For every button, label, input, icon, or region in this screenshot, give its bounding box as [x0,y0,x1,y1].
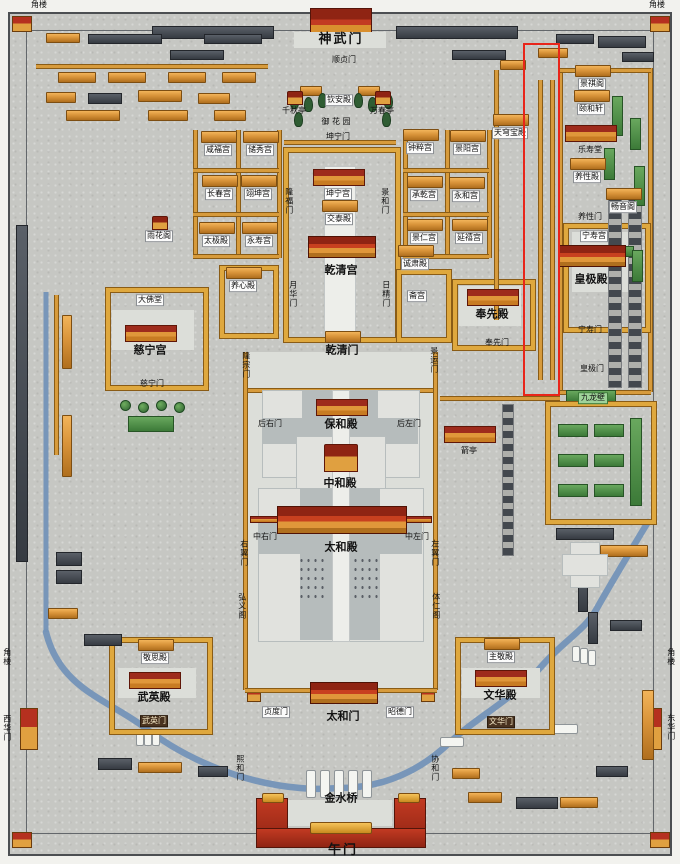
structure [562,554,608,576]
structure [384,94,393,109]
structure [550,724,578,734]
structure [193,254,279,259]
structure [608,198,622,388]
structure [306,770,316,798]
structure [588,650,596,666]
structure [193,212,279,217]
structure [452,768,480,779]
structure [594,484,624,497]
structure [397,270,451,342]
structure [298,556,326,602]
structure [634,166,645,206]
structure [198,93,230,104]
structure [118,668,196,698]
structure [606,246,634,257]
structure [138,90,182,102]
structure [622,52,654,62]
structure [560,797,598,808]
structure [403,254,489,259]
structure [204,34,262,44]
structure [214,110,246,121]
structure [58,72,96,83]
structure [138,762,182,773]
structure [294,32,386,48]
structure [148,110,188,121]
structure [588,612,598,644]
structure [596,766,628,777]
structure [348,770,358,798]
structure [354,93,363,108]
forbidden-city-map: 角楼角楼角楼角楼西华门东华门神武门顺贞门钦安殿千秋亭万春亭御 花 园坤宁门天穹宝… [0,0,680,864]
structure [403,130,408,258]
structure [403,168,489,173]
structure [108,72,146,83]
structure [120,400,131,411]
structure [262,793,284,803]
structure [572,646,580,662]
nine-dragon-screen [566,390,616,402]
structure [48,608,78,619]
structure [502,404,514,556]
structure [294,112,303,127]
structure [459,286,521,326]
structure [630,118,641,150]
structure [290,94,299,109]
structure [632,250,643,282]
structure [250,516,432,523]
structure [594,454,624,467]
structure [610,620,642,631]
structure [324,166,356,332]
annotation-rectangle [523,43,560,396]
structure [452,50,506,60]
structure [580,648,588,664]
structure [198,766,228,777]
structure [630,418,642,506]
structure [128,416,174,432]
structure [112,310,194,350]
structure [66,110,120,121]
structure [362,770,372,798]
structure [433,352,438,690]
structure [36,64,268,69]
structure [174,402,185,413]
structure [56,552,82,566]
structure [445,130,450,258]
structure [310,822,372,834]
structure [304,97,313,112]
structure [318,93,327,108]
structure [468,792,502,803]
structure [46,92,76,103]
structure [277,130,282,258]
map-buildings [0,0,680,864]
structure [168,72,206,83]
structure [88,93,122,104]
structure [193,168,279,173]
structure [604,148,615,180]
structure [334,770,344,798]
structure [396,26,518,39]
structure [138,402,149,413]
structure [462,668,540,698]
structure [558,68,651,73]
structure [558,484,588,497]
structure [612,96,623,136]
structure [558,454,588,467]
structure [440,737,464,747]
structure [236,130,241,258]
structure [382,112,391,127]
structure [243,352,248,690]
structure [98,758,132,770]
structure [193,130,198,258]
structure [170,50,224,60]
structure [88,34,162,44]
structure [594,424,624,437]
structure [556,34,594,44]
structure [62,315,72,369]
structure [368,97,377,112]
structure [222,72,256,83]
structure [572,232,634,292]
structure [46,33,80,43]
structure [352,556,380,602]
structure [56,570,82,584]
structure [403,212,489,217]
structure [16,225,28,562]
structure [628,198,642,388]
structure [598,36,646,48]
structure [516,797,558,809]
structure [284,140,396,145]
structure [494,70,499,320]
structure [440,396,560,401]
structure [156,400,167,411]
structure [54,295,59,455]
structure [487,130,492,258]
structure [642,690,654,760]
structure [398,793,420,803]
structure [556,528,614,540]
structure [558,424,588,437]
structure [320,770,330,798]
structure [84,634,122,646]
structure [245,688,437,693]
structure [62,415,72,477]
structure [220,266,278,338]
